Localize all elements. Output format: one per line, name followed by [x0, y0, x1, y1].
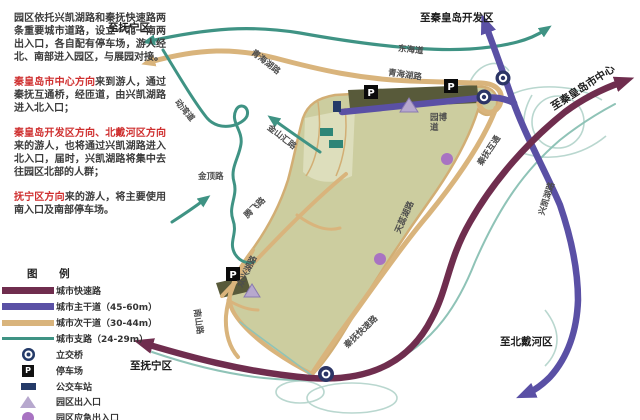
parking-icon: P	[364, 85, 378, 99]
svg-text:P: P	[229, 270, 236, 281]
green-facility	[329, 140, 343, 148]
intro-paragraph: 园区依托兴凯湖路和秦抚快速路两条重要城市道路，设立一北一南两出入口，各自配有停车…	[14, 12, 166, 64]
legend-label: 停车场	[56, 364, 83, 377]
parking-icon: P	[0, 365, 56, 377]
green-facility	[320, 128, 333, 136]
intro-lead: 秦皇岛开发区方向、北戴河区方向	[14, 128, 166, 139]
intro-paragraph: 秦皇岛市中心方向来到游人，通过秦抚互通桥，经匝道，由兴凯湖路进入北入口；	[14, 76, 166, 115]
legend-row-parking: P停车场	[0, 363, 83, 378]
interchange-icon	[477, 90, 492, 105]
emergency-exit-icon	[441, 153, 453, 165]
legend-label: 公交车站	[56, 380, 92, 393]
legend-label: 园区应急出入口	[56, 411, 119, 420]
legend-row-interchange: 立交桥	[0, 347, 83, 362]
legend-row-branch-road: 城市支路（24-29m）	[0, 331, 148, 346]
road-label-yuanbo: 园博 道	[430, 113, 447, 133]
intro-paragraph: 秦皇岛开发区方向、北戴河区方向来的游人，也将通过兴凯湖路进入北入口，届时，兴凯湖…	[14, 127, 166, 179]
intro-paragraph: 抚宁区方向来的游人，将主要使用南入口及南部停车场。	[14, 191, 166, 217]
svg-text:P: P	[367, 88, 374, 99]
dest-label-funing-south: 至抚宁区	[130, 358, 172, 373]
dest-label-beidaihe: 至北戴河区	[500, 334, 553, 349]
branch-road-swatch	[0, 337, 56, 340]
transport-map-page: P P P 至抚宁区 至秦皇岛开发区 至秦皇岛市中心 至北戴河区 至抚宁区 东海…	[0, 0, 640, 420]
road-dongwan-jinding	[163, 50, 254, 263]
legend-label: 立交桥	[56, 348, 83, 361]
legend-label: 城市支路（24-29m）	[56, 332, 148, 345]
svg-text:P: P	[447, 82, 454, 93]
emergency-exit-icon	[374, 253, 386, 265]
legend-row-entrance: 园区出入口	[0, 394, 101, 409]
legend-row-expressway: 城市快速路	[0, 283, 101, 298]
legend-row-emergency-exit: 园区应急出入口	[0, 410, 119, 420]
intro-lead: 抚宁区方向	[14, 192, 65, 203]
parking-icon: P	[444, 79, 458, 93]
intro-text: 园区依托兴凯湖路和秦抚快速路两条重要城市道路，设立一北一南两出入口，各自配有停车…	[14, 12, 166, 229]
interchange-icon	[318, 366, 334, 382]
legend-label: 城市次干道（30-44m）	[56, 316, 157, 329]
interchange-icon	[0, 348, 56, 361]
bus-station-icon	[0, 383, 56, 390]
intro-body: 园区依托兴凯湖路和秦抚快速路两条重要城市道路，设立一北一南两出入口，各自配有停车…	[14, 13, 166, 63]
expressway-swatch	[0, 287, 56, 294]
legend-row-main-road: 城市主干道（45-60m）	[0, 299, 157, 314]
dest-label-development-zone: 至秦皇岛开发区	[420, 10, 494, 25]
legend-title: 图 例	[27, 266, 79, 281]
legend-label: 城市快速路	[56, 284, 101, 297]
secondary-road-swatch	[0, 320, 56, 326]
legend-label: 城市主干道（45-60m）	[56, 300, 157, 313]
legend-row-bus-station: 公交车站	[0, 379, 92, 394]
intro-lead: 秦皇岛市中心方向	[14, 77, 95, 88]
legend-label: 园区出入口	[56, 395, 101, 408]
legend-row-secondary-road: 城市次干道（30-44m）	[0, 315, 157, 330]
intro-body: 来的游人，也将通过兴凯湖路进入北入口，届时，兴凯湖路将集中去往园区北部的人群；	[14, 141, 166, 178]
park-entrance-icon	[0, 396, 56, 408]
bus-station-icon	[333, 101, 341, 112]
emergency-exit-icon	[0, 412, 56, 420]
interchange-icon	[496, 71, 511, 86]
road-teal-spur	[172, 200, 204, 222]
main-road-swatch	[0, 303, 56, 310]
road-label-jinding: 金顶路	[198, 172, 224, 182]
